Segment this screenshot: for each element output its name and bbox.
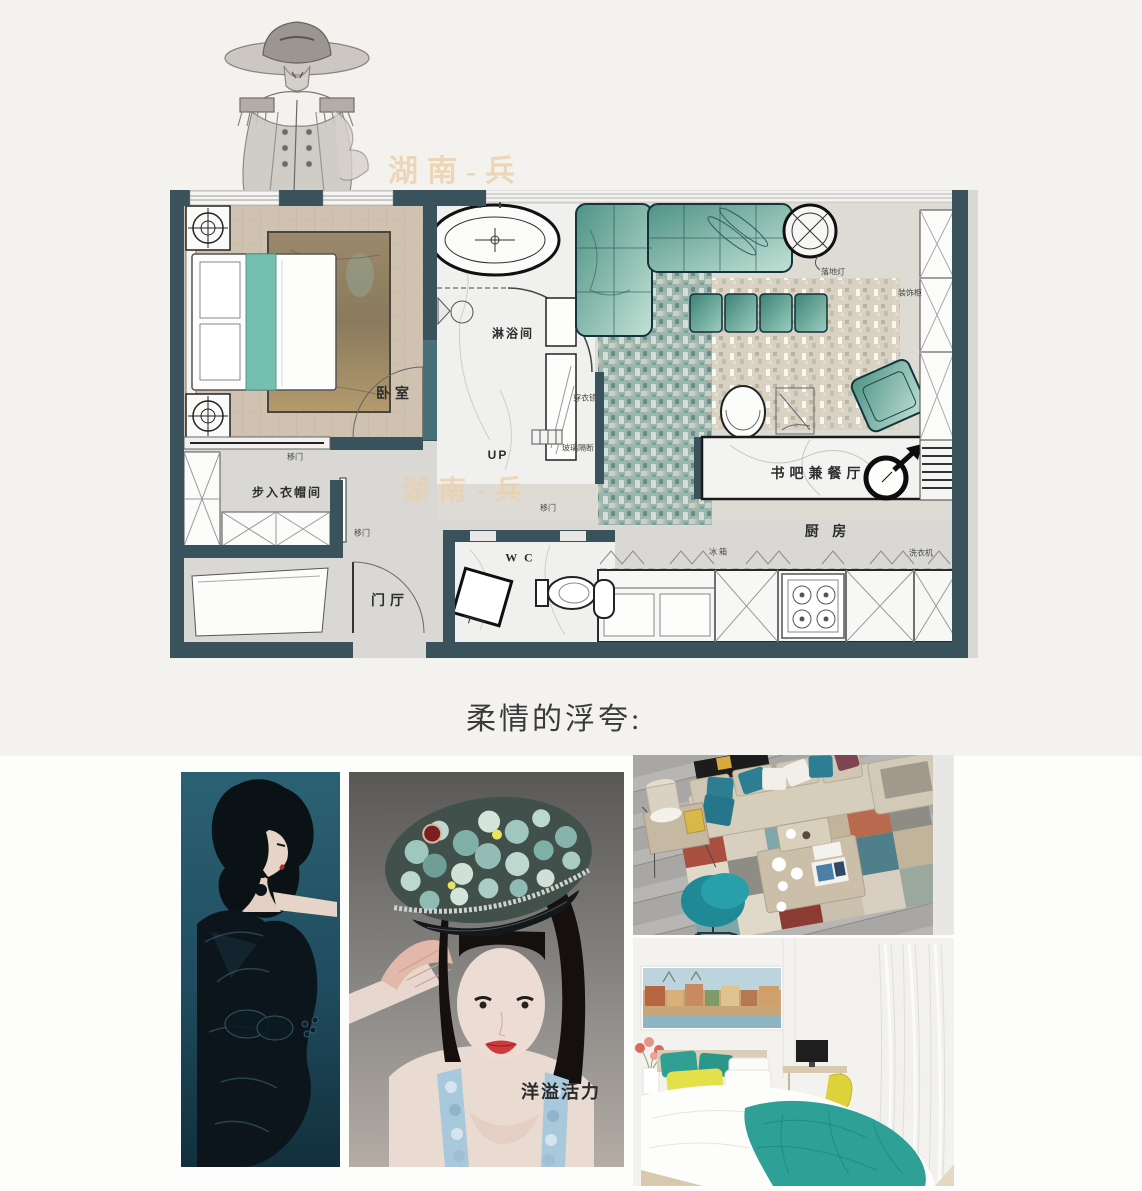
sliding-door-slot	[470, 531, 496, 541]
photo-bedroom	[633, 938, 954, 1186]
label-dressing-mirror: 穿衣镜	[573, 393, 597, 404]
photo-fashion	[181, 772, 340, 1167]
wall	[330, 480, 343, 558]
label-wc: W C	[505, 551, 534, 566]
sliding-door-slot	[560, 531, 586, 541]
label-glass-partition: 玻璃隔断	[562, 443, 594, 454]
bed-runner	[246, 254, 276, 390]
pillow	[200, 262, 240, 318]
section-title: 柔情的浮夸:	[466, 694, 642, 738]
label-walk-in-closet: 步入衣帽间	[252, 484, 322, 501]
decor-cabinet-column	[920, 210, 954, 500]
wall	[443, 530, 455, 642]
curtain-edge	[933, 755, 954, 935]
watermark-top: 湖南-兵	[388, 146, 524, 190]
photo-living-render	[633, 755, 954, 935]
label-kitchen: 厨 房	[805, 521, 852, 541]
label-up: UP	[488, 448, 509, 462]
floor-plan: 卧室 淋浴间 步入衣帽间 门厅 W C UP 书吧兼餐厅 厨 房 冰 箱 洗衣机…	[170, 190, 978, 658]
desk-chair	[721, 386, 765, 438]
washbasin	[594, 580, 614, 618]
label-washing-machine: 洗衣机	[909, 548, 933, 559]
label-book-bar-dining: 书吧兼餐厅	[771, 463, 866, 483]
label-sliding-door: 移门	[287, 452, 303, 463]
yellow-frame	[684, 809, 706, 834]
floor-plan-drawing	[170, 190, 978, 658]
label-entry-hall: 门厅	[371, 590, 409, 610]
pencil-sketch-figure	[200, 0, 395, 192]
wall	[330, 437, 423, 450]
painting-caption: 洋溢活力	[521, 1078, 601, 1104]
label-shower: 淋浴间	[492, 325, 534, 342]
kitchen-counter	[598, 570, 958, 642]
bedroom-photo-art	[633, 938, 954, 1186]
photo-painting: 洋溢活力	[349, 772, 624, 1167]
living-render-art	[633, 755, 954, 935]
bed	[186, 250, 336, 394]
watermark-plan: 湖南-兵	[402, 469, 532, 508]
pillow	[200, 324, 240, 380]
fashion-photo-art	[181, 772, 340, 1167]
entry-bench	[192, 568, 328, 636]
wall-accent	[423, 340, 437, 440]
up-steps	[532, 430, 562, 444]
painting-art	[349, 772, 624, 1167]
monitor	[796, 1040, 828, 1062]
label-fridge: 冰 箱	[709, 547, 727, 558]
stove	[782, 574, 844, 638]
sliding-track	[184, 437, 330, 449]
nightstand-downlight-symbol	[186, 206, 230, 250]
toilet	[536, 577, 596, 609]
wall	[184, 545, 330, 558]
nightstand-downlight-symbol	[186, 394, 230, 438]
label-sliding-door: 移门	[354, 528, 370, 539]
label-decor-cabinet: 装饰柜	[898, 288, 922, 299]
window-band	[486, 190, 954, 202]
wall-art	[641, 966, 783, 1030]
label-bedroom: 卧室	[376, 383, 414, 403]
label-floor-lamp: 落地灯	[821, 267, 845, 278]
label-sliding-door: 移门	[540, 503, 556, 514]
wall	[595, 372, 604, 484]
bath-cabinet	[546, 298, 576, 346]
